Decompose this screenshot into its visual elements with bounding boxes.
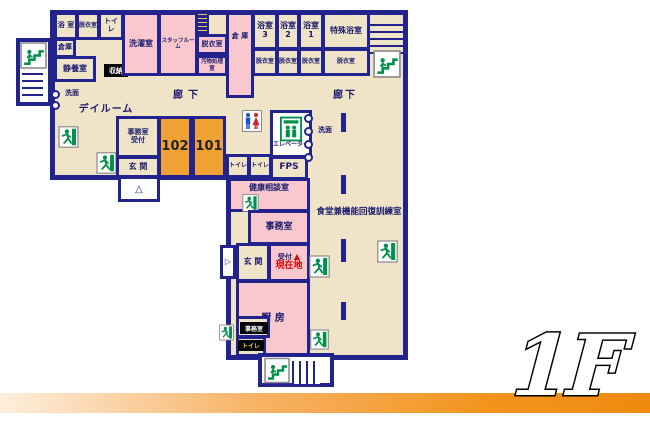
room-reception-main: 受付 ▲ 現在地 (268, 243, 310, 282)
room-changing-bath1: 脱衣室 (298, 48, 324, 76)
room-waste: 汚物処理室 (196, 55, 228, 76)
wall (403, 10, 408, 360)
entrance-direction-marker: ▷ (225, 258, 231, 267)
room-office-mid: 事務室 (248, 210, 310, 245)
room-toilet-top-left: トイレ (98, 12, 124, 40)
room-toilet-a: トイレ (226, 154, 250, 178)
room-bath1: 浴室1 (298, 12, 324, 50)
partition-dash (341, 239, 346, 262)
stairs-icon (20, 42, 47, 69)
washbasin (304, 153, 313, 162)
room-changing-bath2: 脱衣室 (276, 48, 300, 76)
room-102: 102 (158, 116, 192, 178)
exit-icon (58, 126, 79, 148)
partition-dash (341, 302, 346, 320)
dining-training-label: 食堂兼機能回復訓練室 (314, 208, 404, 217)
floor-number-logo: 1F (484, 316, 650, 428)
room-changing-special: 脱衣室 (322, 48, 370, 76)
washstand-label-center: 洗面 (314, 127, 336, 135)
exit-icon (219, 324, 234, 341)
stair-steps (22, 73, 43, 100)
washstand-label-left: 洗面 (61, 90, 83, 98)
you-are-here-label: 現在地 (275, 262, 302, 272)
room-fps: FPS (270, 156, 308, 180)
entrance-porch-front: △ (118, 176, 160, 202)
floor-plan-1f: 浴 室 脱衣室 トイレ 倉庫 静養室 収納 洗濯室 スタッフルーム 脱衣室 汚物… (0, 0, 650, 434)
exit-icon (309, 255, 330, 278)
room-rest: 静養室 (54, 56, 96, 82)
room-storage-tall: 倉 庫 (226, 12, 254, 98)
room-bath-top-left: 浴 室 (54, 12, 78, 40)
partition-dash (341, 175, 346, 194)
room-bath2: 浴室2 (276, 12, 300, 50)
small-vertical-sign-icon (196, 12, 209, 36)
room-changing-top-left: 脱衣室 (76, 12, 100, 40)
room-entrance-main: 玄 関 (236, 243, 270, 282)
room-special-bath: 特殊浴室 (322, 12, 370, 50)
stairs-icon (373, 50, 401, 78)
partition-dash (341, 113, 346, 132)
reception-front-label: 受付 (131, 137, 145, 145)
washbasin (51, 101, 60, 110)
exit-icon (96, 152, 117, 174)
toilet-man-woman-icon (242, 110, 262, 132)
corridor-label-right: 廊下 (326, 90, 364, 101)
washbasin (51, 90, 60, 99)
room-entrance-front: 玄 関 (116, 156, 160, 178)
room-laundry: 洗濯室 (122, 12, 160, 76)
room-health-consult: 健康相談室 (228, 178, 310, 212)
washbasin (304, 127, 313, 136)
corridor-label-left: 廊下 (166, 90, 210, 101)
day-room-label: デイルーム (72, 104, 140, 115)
room-101: 101 (192, 116, 226, 178)
washbasin (304, 140, 313, 149)
room-bath3: 浴室3 (252, 12, 278, 50)
stairs-icon (264, 357, 290, 384)
elevator-icon (280, 116, 302, 142)
room-changing-mid: 脱衣室 (196, 34, 228, 55)
office-small-label: 事務室 (240, 322, 268, 334)
exit-icon (310, 328, 329, 351)
entrance-porch-main: ▷ (220, 245, 236, 279)
stair-steps (292, 361, 320, 384)
room-office-front: 事務室 受付 (116, 116, 160, 158)
room-storage-top-left: 倉庫 (54, 38, 76, 58)
room-staff: スタッフルーム (158, 12, 198, 76)
room-toilet-b: トイレ (248, 154, 272, 178)
room-changing-bath3: 脱衣室 (252, 48, 278, 76)
exit-icon (377, 239, 398, 264)
toilet-small-label: トイレ (238, 340, 264, 351)
entrance-direction-marker: △ (135, 184, 143, 195)
washbasin (304, 114, 313, 123)
